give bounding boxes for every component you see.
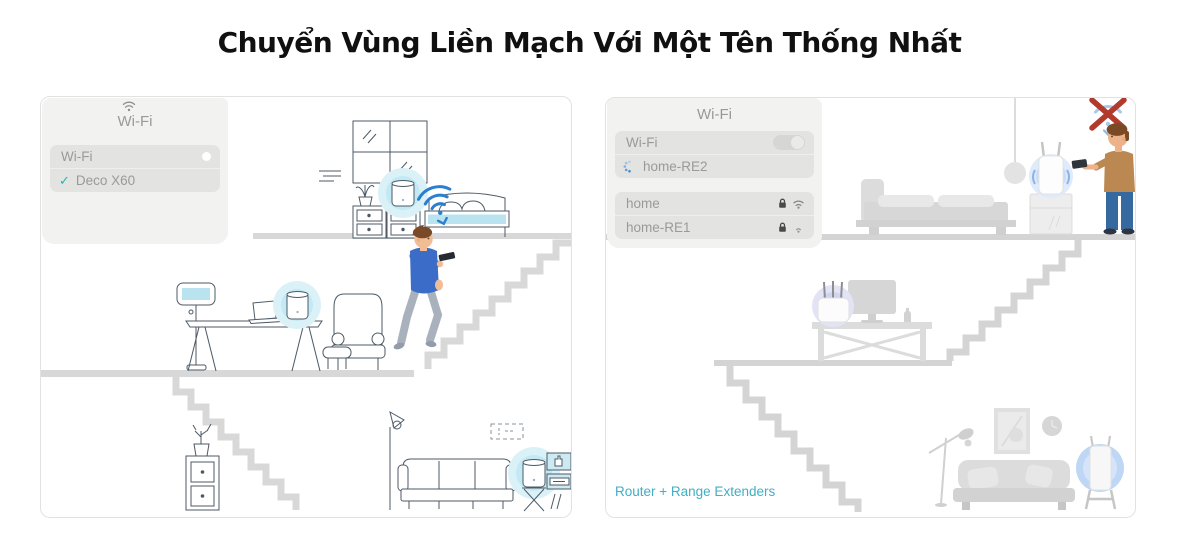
potted-plant: [356, 185, 374, 206]
wifi-strong-icon: [792, 199, 805, 209]
wall-shelves: [547, 453, 571, 509]
wall-art: [994, 408, 1030, 454]
desk-bottle: [904, 308, 911, 322]
wifi-menu-title: Wi-Fi: [607, 98, 822, 124]
check-icon: ✓: [59, 173, 70, 189]
router: [812, 281, 854, 327]
range-extender-livingroom: [1076, 436, 1124, 509]
spinner-icon: [623, 160, 636, 173]
bed: [856, 179, 1016, 235]
monitor: [848, 280, 896, 323]
person-standing: [1072, 123, 1135, 234]
right-panel-caption: Router + Range Extenders: [615, 484, 775, 499]
network-row[interactable]: home: [615, 192, 814, 215]
network-name: Deco X60: [76, 173, 135, 188]
wifi-weak-icon: [792, 223, 805, 233]
nightstand: [1030, 194, 1072, 234]
pendant-light: [1004, 98, 1026, 184]
network-name: home-RE2: [643, 159, 708, 174]
lock-icon: [778, 222, 787, 233]
toggle-dot[interactable]: [202, 152, 211, 161]
wifi-menu-mesh: Wi-Fi Wi-Fi ✓ Deco X60: [42, 98, 228, 244]
network-row[interactable]: home-RE1: [615, 215, 814, 239]
wifi-toggle-label: Wi-Fi: [626, 135, 657, 150]
computer-desk: [812, 322, 932, 361]
wifi-toggle-label: Wi-Fi: [61, 149, 92, 164]
network-name: home-RE1: [626, 220, 691, 235]
network-row-connecting[interactable]: home-RE2: [615, 154, 814, 178]
sofa: [953, 460, 1075, 510]
staircase-upper: [950, 240, 1078, 361]
bed: [425, 193, 509, 237]
deco-unit-office: [273, 281, 321, 329]
network-row-selected[interactable]: ✓ Deco X60: [50, 168, 220, 192]
lock-icon: [778, 198, 787, 209]
range-extender-bedroom: [1029, 142, 1073, 198]
armchair: [323, 294, 385, 370]
wall-frame-dashed: [491, 424, 523, 439]
cactus: [193, 424, 211, 456]
wall-vent: [319, 171, 341, 181]
wifi-menu-extenders: Wi-Fi Wi-Fi home-RE2 home: [607, 98, 822, 248]
extender-house-panel: Wi-Fi Wi-Fi home-RE2 home: [605, 97, 1136, 518]
wifi-toggle-row[interactable]: Wi-Fi: [50, 145, 220, 168]
toggle-knob: [791, 136, 804, 149]
wall-clock: [1042, 416, 1062, 436]
wifi-icon: [122, 101, 136, 112]
wifi-toggle-row[interactable]: Wi-Fi: [615, 131, 814, 154]
network-name: home: [626, 196, 660, 211]
mesh-house-panel: Wi-Fi Wi-Fi ✓ Deco X60: [40, 96, 572, 518]
staircase-upper: [428, 243, 571, 369]
wifi-toggle-switch[interactable]: [773, 135, 805, 150]
page-title: Chuyển Vùng Liền Mạch Với Một Tên Thống …: [0, 26, 1179, 59]
person-walking: [393, 225, 456, 351]
deco-unit-bedroom: [378, 168, 428, 218]
sofa: [398, 459, 516, 509]
dresser: [186, 456, 219, 510]
